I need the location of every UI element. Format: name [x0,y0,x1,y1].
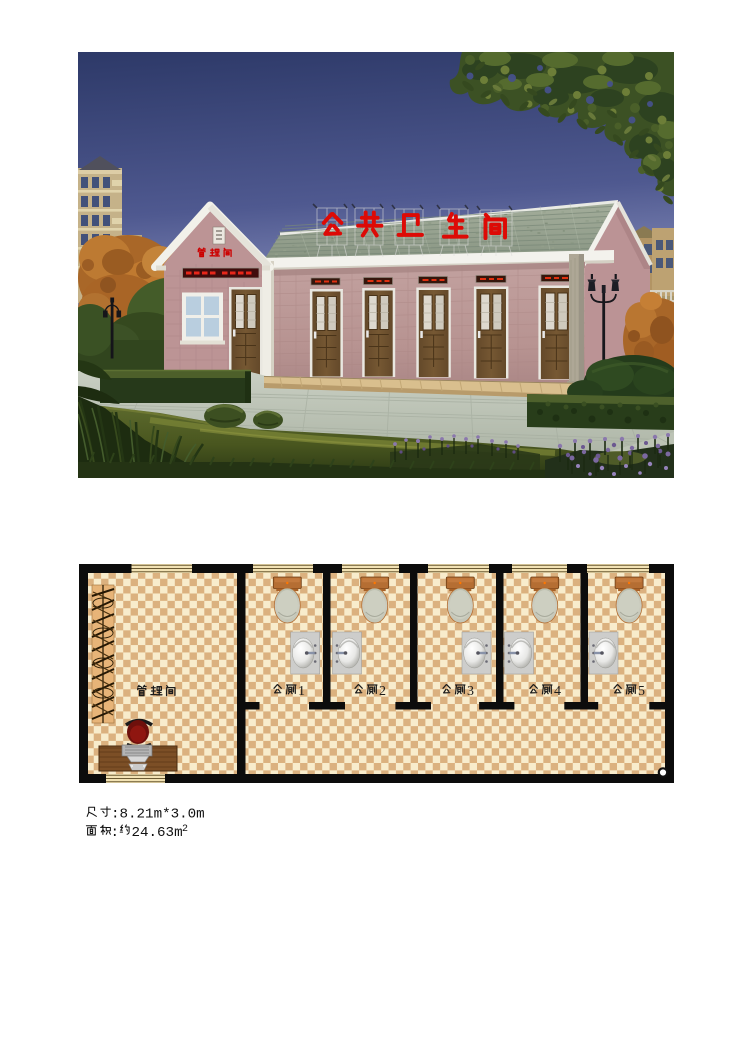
svg-text::: : [111,825,120,841]
svg-text:1: 1 [298,684,305,699]
svg-text:3: 3 [467,684,474,699]
svg-text::8.21m*3.0m: :8.21m*3.0m [111,806,205,822]
svg-text:2: 2 [182,824,188,835]
svg-text:24.63m: 24.63m [132,825,183,841]
svg-text:2: 2 [379,684,386,699]
svg-text:5: 5 [638,684,645,699]
svg-text:4: 4 [554,684,561,699]
